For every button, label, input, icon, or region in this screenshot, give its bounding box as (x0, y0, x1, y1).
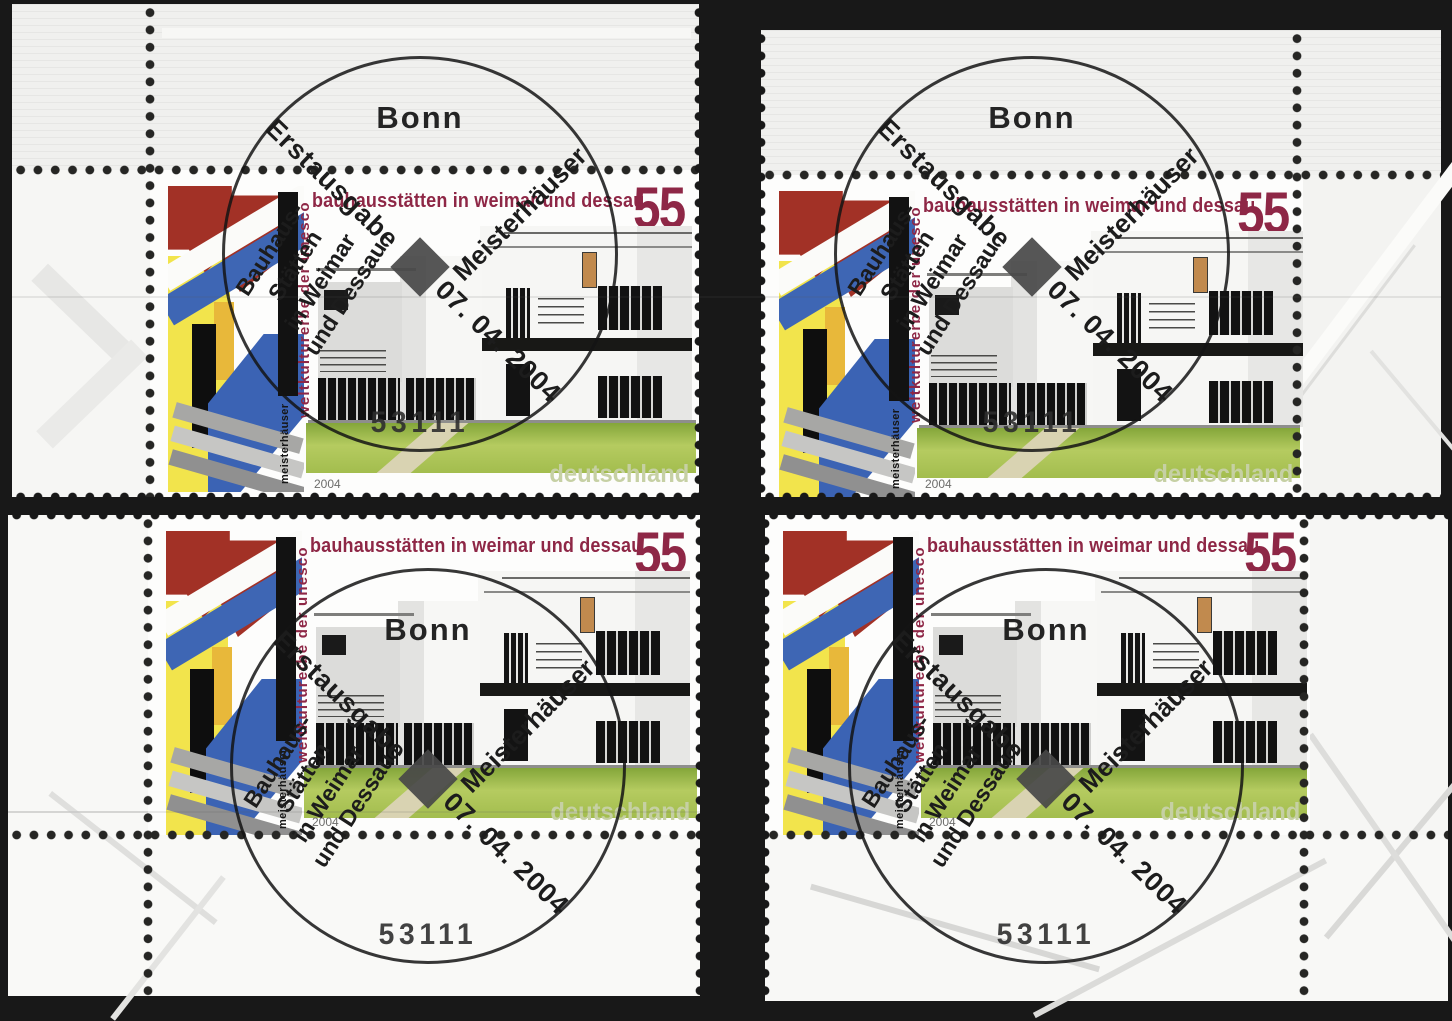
first-day-postmark: Bonn Erstausgabe Bauhaus- Stätten in Wei… (222, 56, 618, 452)
scan-artifact-line (12, 296, 1441, 298)
stamp-corner-block-bottom-left: meisterhäuser weltkulturerbe der unesco … (8, 515, 700, 996)
perforated-edge-horizontal (761, 491, 1441, 503)
margin-print-pattern (162, 28, 691, 38)
perforated-edge-vertical (693, 4, 705, 497)
stamp-title: bauhausstätten in weimar und dessau (310, 535, 642, 558)
perforated-edge-horizontal (12, 491, 699, 503)
stamp-corner-block-top-right: meisterhäuser weltkulturerbe der unesco … (761, 30, 1441, 497)
stamp-year: 2004 (925, 477, 952, 491)
scanned-stamps-board: meisterhäuser weltkulturerbe der unesco … (0, 0, 1452, 1018)
stamp-title: bauhausstätten in weimar und dessau (927, 535, 1259, 558)
gold-rectangle (212, 647, 232, 725)
first-day-postmark: Bonn Erstausgabe Bauhaus- Stätten in Wei… (848, 568, 1244, 964)
stamp-corner-block-top-left: meisterhäuser weltkulturerbe der unesco … (12, 4, 699, 497)
postmark-postal-code: 53111 (846, 406, 1218, 440)
stamp-country: deutschland (1153, 460, 1293, 489)
stamp-country: deutschland (549, 460, 689, 489)
perforation-column (142, 515, 154, 996)
perforated-edge-horizontal (765, 509, 1448, 521)
perforation-column (1298, 515, 1310, 1001)
stamp-corner-block-bottom-right: meisterhäuser weltkulturerbe der unesco … (765, 515, 1448, 1001)
perforation-column (1291, 30, 1303, 497)
postmark-postal-code: 53111 (234, 406, 606, 440)
gold-rectangle (829, 647, 849, 725)
postmark-postal-code: 53111 (242, 918, 614, 952)
perforated-edge-vertical (759, 515, 771, 1001)
postmark-postal-code: 53111 (860, 918, 1232, 952)
perforated-edge-horizontal (8, 509, 700, 521)
sheet-margin-strip-side (1304, 515, 1448, 835)
scan-artifact-line (8, 811, 700, 813)
perforated-edge-vertical (755, 30, 767, 497)
perforated-edge-vertical (694, 515, 706, 996)
first-day-postmark: Bonn Erstausgabe Bauhaus- Stätten in Wei… (834, 56, 1230, 452)
stamp-year: 2004 (314, 477, 341, 491)
sheet-margin-strip-side (8, 515, 148, 835)
sheet-margin-strip-side (12, 170, 150, 497)
perforation-column (144, 4, 156, 497)
first-day-postmark: Bonn Erstausgabe Bauhaus- Stätten in Wei… (230, 568, 626, 964)
